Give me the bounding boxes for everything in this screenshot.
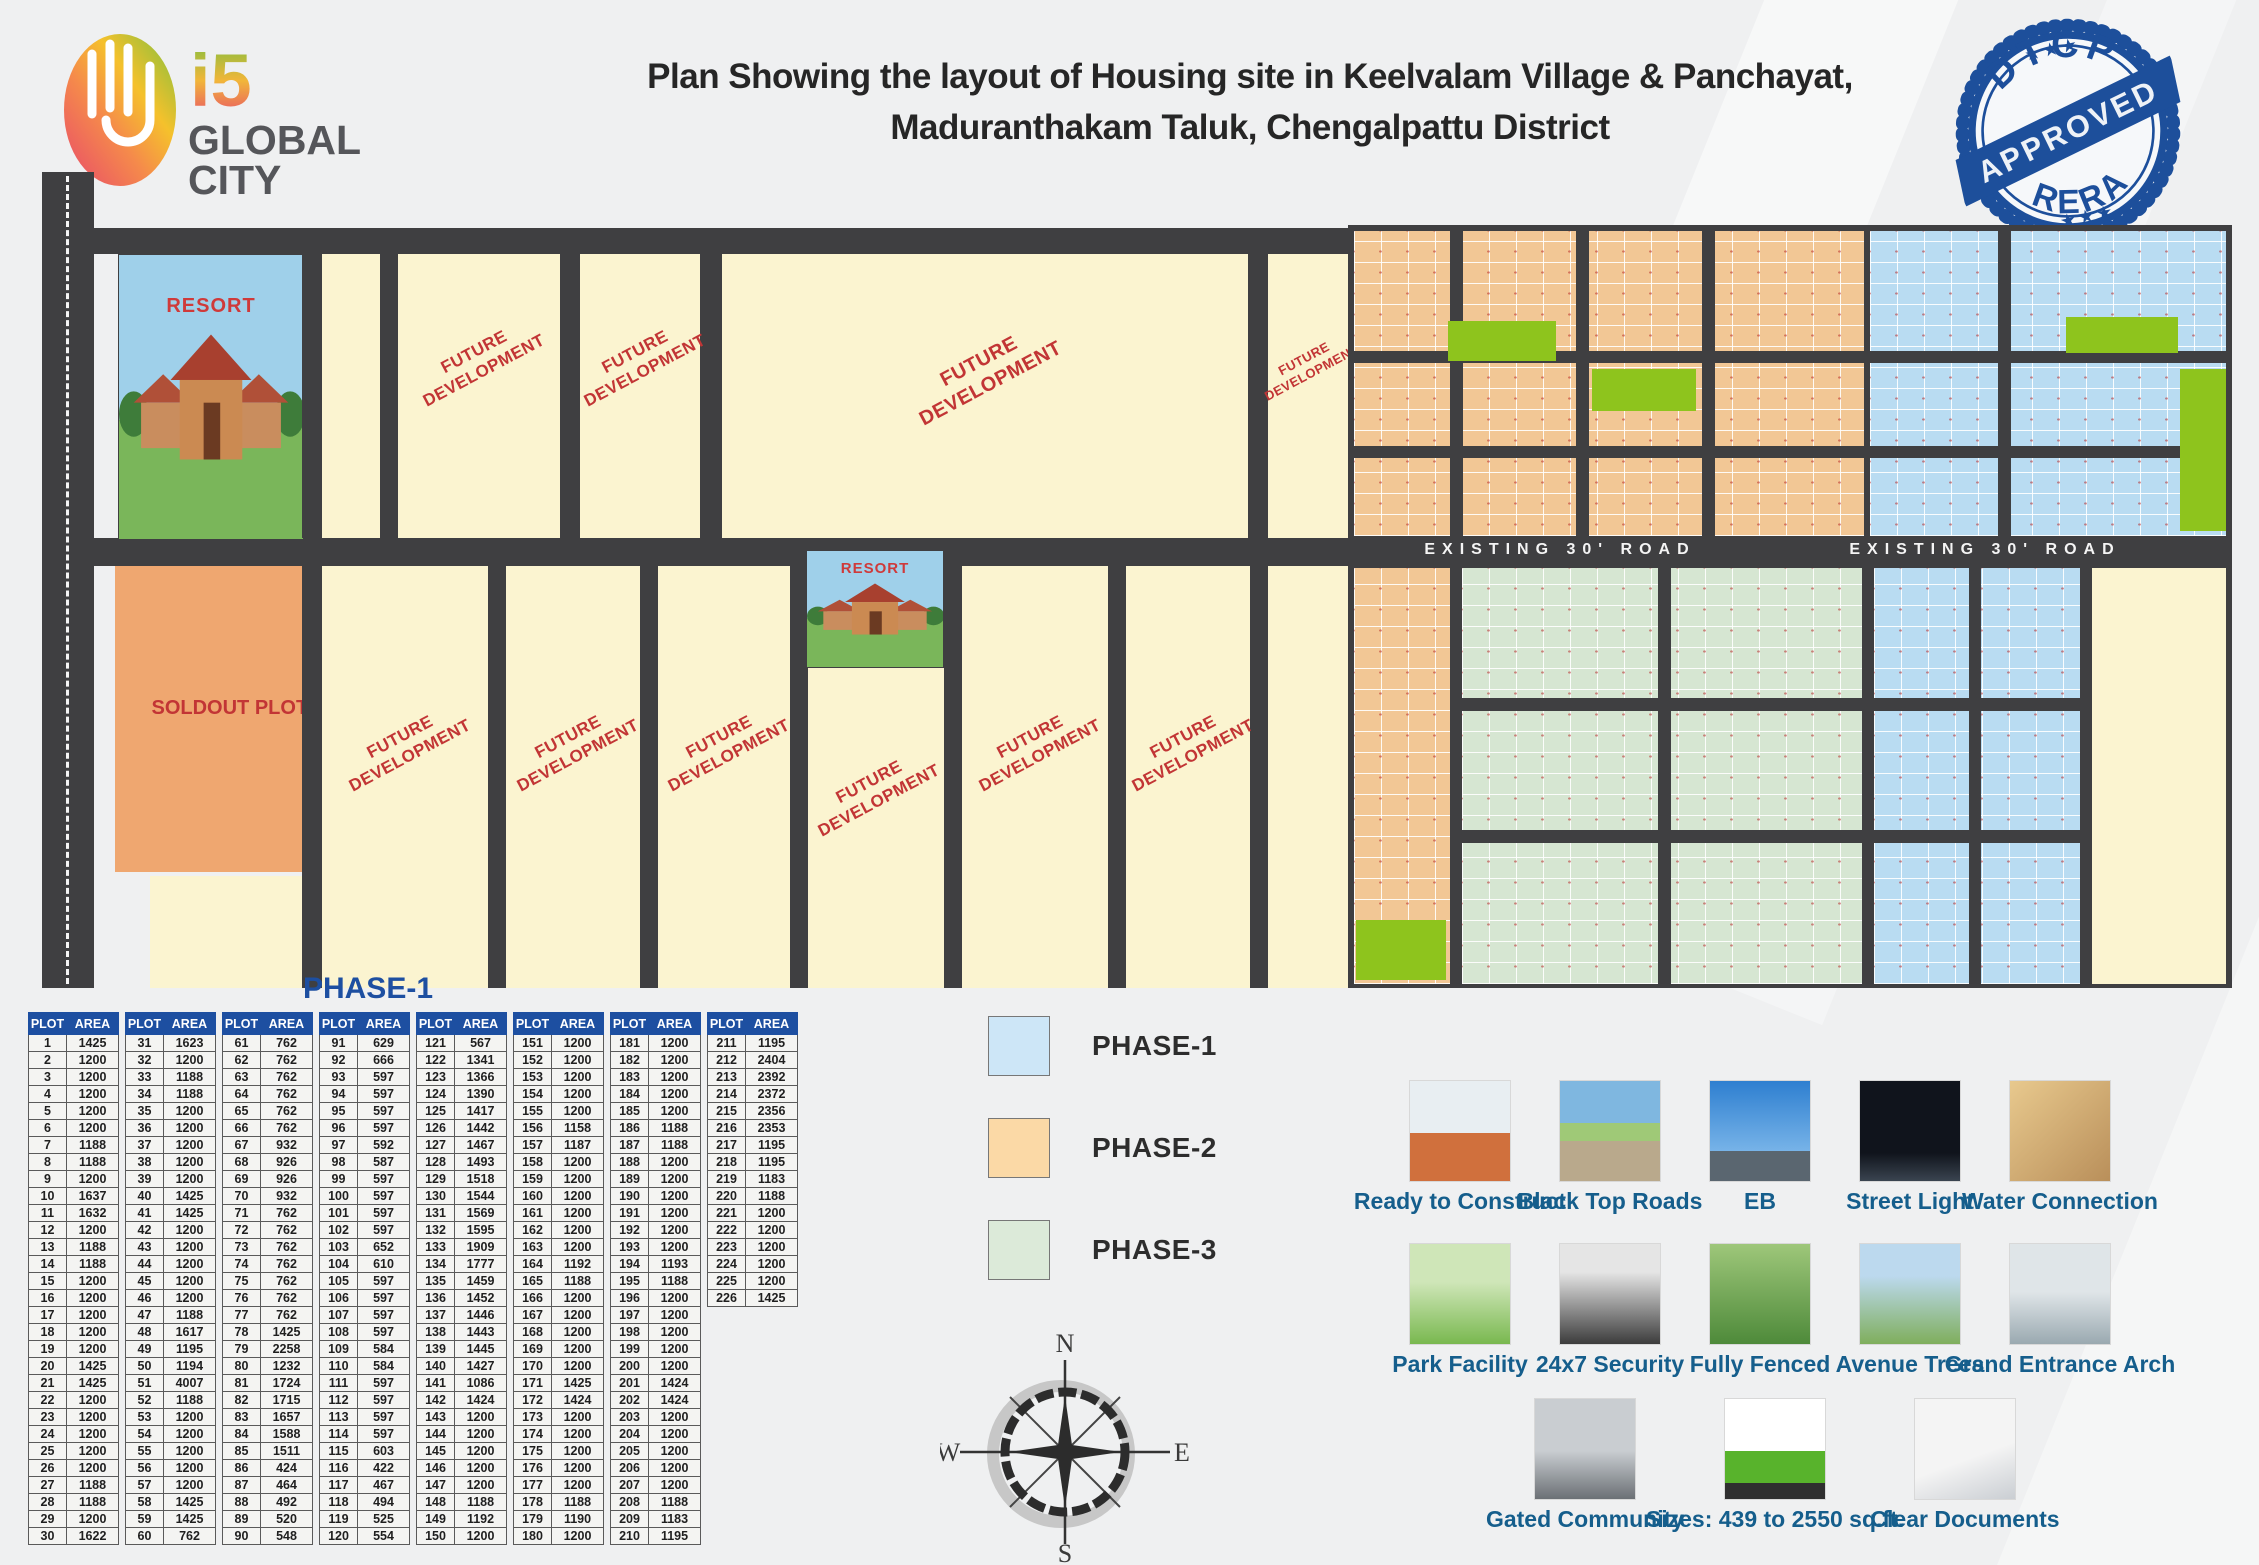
- plot-cell: 25: [29, 1443, 67, 1460]
- table-row: 76762: [223, 1290, 313, 1307]
- area-cell: 422: [358, 1460, 410, 1477]
- table-row: 581425: [126, 1494, 216, 1511]
- table-row: 591425: [126, 1511, 216, 1528]
- table-row: 1981200: [611, 1324, 701, 1341]
- plot-cell: 80: [223, 1358, 261, 1375]
- table-row: 221200: [29, 1392, 119, 1409]
- amenity-photo: [1709, 1080, 1811, 1182]
- table-row: 191200: [29, 1341, 119, 1358]
- area-cell: 1518: [455, 1171, 507, 1188]
- phase1-plot-block: [1874, 568, 2080, 984]
- area-cell: 1200: [649, 1307, 701, 1324]
- area-cell: 597: [358, 1086, 410, 1103]
- table-row: 1801200: [514, 1528, 604, 1545]
- area-cell: 1200: [67, 1307, 119, 1324]
- table-row: 831657: [223, 1409, 313, 1426]
- area-cell: 1200: [164, 1171, 216, 1188]
- table-row: 1641192: [514, 1256, 604, 1273]
- table-row: 541200: [126, 1426, 216, 1443]
- table-row: 2051200: [611, 1443, 701, 1460]
- table-row: 88492: [223, 1494, 313, 1511]
- area-cell: 467: [358, 1477, 410, 1494]
- plot-cell: 217: [708, 1137, 746, 1154]
- plot-cell: 13: [29, 1239, 67, 1256]
- table-row: 91200: [29, 1171, 119, 1188]
- table-row: 1281493: [417, 1154, 507, 1171]
- plot-cell: 152: [514, 1052, 552, 1069]
- area-cell: 1200: [649, 1443, 701, 1460]
- plot-cell: 137: [417, 1307, 455, 1324]
- table-row: 115603: [320, 1443, 410, 1460]
- area-cell: 1188: [67, 1477, 119, 1494]
- table-row: 251200: [29, 1443, 119, 1460]
- plot-cell: 59: [126, 1511, 164, 1528]
- plot-cell: 16: [29, 1290, 67, 1307]
- area-cell: 1200: [552, 1409, 604, 1426]
- area-cell: 1200: [67, 1120, 119, 1137]
- table-row: 201425: [29, 1358, 119, 1375]
- table-row: 65762: [223, 1103, 313, 1120]
- table-row: 351200: [126, 1103, 216, 1120]
- table-row: 74762: [223, 1256, 313, 1273]
- area-cell: 1200: [552, 1086, 604, 1103]
- table-row: 1381443: [417, 1324, 507, 1341]
- plot-cell: 164: [514, 1256, 552, 1273]
- plot-cell: 50: [126, 1358, 164, 1375]
- plot-cell: 118: [320, 1494, 358, 1511]
- table-row: 103652: [320, 1239, 410, 1256]
- plot-cell: 18: [29, 1324, 67, 1341]
- area-cell: 494: [358, 1494, 410, 1511]
- table-row: 301622: [29, 1528, 119, 1545]
- area-cell: 1183: [649, 1511, 701, 1528]
- plot-cell: 190: [611, 1188, 649, 1205]
- table-row: 441200: [126, 1256, 216, 1273]
- plot-cell: 35: [126, 1103, 164, 1120]
- area-cell: 1195: [746, 1035, 798, 1052]
- amenity-item: Fully Fenced: [1685, 1243, 1835, 1393]
- area-cell: 597: [358, 1273, 410, 1290]
- road: [1870, 446, 2226, 458]
- table-row: 1941193: [611, 1256, 701, 1273]
- plot-cell: 171: [514, 1375, 552, 1392]
- area-cell: 1622: [67, 1528, 119, 1545]
- table-row: 841588: [223, 1426, 313, 1443]
- plot-cell: 123: [417, 1069, 455, 1086]
- amenity-photo: [2009, 1080, 2111, 1182]
- area-cell: 926: [261, 1154, 313, 1171]
- plot-cell: 142: [417, 1392, 455, 1409]
- table-row: 1571187: [514, 1137, 604, 1154]
- area-cell: 1200: [455, 1409, 507, 1426]
- area-cell: 1188: [746, 1188, 798, 1205]
- plot-cell: 106: [320, 1290, 358, 1307]
- col-header: PLOT: [417, 1013, 455, 1035]
- table-row: 73762: [223, 1239, 313, 1256]
- table-row: 1741200: [514, 1426, 604, 1443]
- amenity-label: Black Top Roads: [1518, 1188, 1703, 1215]
- plot-cell: 87: [223, 1477, 261, 1494]
- plot-cell: 139: [417, 1341, 455, 1358]
- plot-cell: 205: [611, 1443, 649, 1460]
- amenity-photo: [1559, 1080, 1661, 1182]
- area-cell: 597: [358, 1307, 410, 1324]
- area-cell: 1200: [649, 1477, 701, 1494]
- plot-cell: 108: [320, 1324, 358, 1341]
- area-cell: 762: [261, 1120, 313, 1137]
- area-cell: 1195: [164, 1341, 216, 1358]
- area-cell: 1188: [164, 1069, 216, 1086]
- plot-cell: 187: [611, 1137, 649, 1154]
- plot-cell: 159: [514, 1171, 552, 1188]
- area-cell: 1200: [552, 1069, 604, 1086]
- area-cell: 597: [358, 1392, 410, 1409]
- table-row: 2071200: [611, 1477, 701, 1494]
- table-row: 2181195: [708, 1154, 798, 1171]
- table-row: 1531200: [514, 1069, 604, 1086]
- plot-cell: 147: [417, 1477, 455, 1494]
- area-cell: 1200: [552, 1052, 604, 1069]
- plot-cell: 157: [514, 1137, 552, 1154]
- area-cell: 1200: [552, 1477, 604, 1494]
- plot-cell: 85: [223, 1443, 261, 1460]
- table-row: 1991200: [611, 1341, 701, 1358]
- area-cell: 1200: [552, 1324, 604, 1341]
- amenity-photo: [1914, 1398, 2016, 1500]
- table-row: 120554: [320, 1528, 410, 1545]
- plot-cell: 69: [223, 1171, 261, 1188]
- area-cell: 597: [358, 1171, 410, 1188]
- area-cell: 1232: [261, 1358, 313, 1375]
- table-row: 531200: [126, 1409, 216, 1426]
- phase2-plot-block: [1354, 231, 1864, 536]
- table-row: 1841200: [611, 1086, 701, 1103]
- amenity-item: Water Connection: [1985, 1080, 2135, 1230]
- plot-cell: 193: [611, 1239, 649, 1256]
- area-cell: 762: [261, 1086, 313, 1103]
- plot-cell: 30: [29, 1528, 67, 1545]
- area-cell: 932: [261, 1137, 313, 1154]
- area-cell: 597: [358, 1120, 410, 1137]
- plot-cell: 175: [514, 1443, 552, 1460]
- area-cell: 1188: [67, 1494, 119, 1511]
- plot-cell: 55: [126, 1443, 164, 1460]
- plot-cell: 208: [611, 1494, 649, 1511]
- area-cell: 1200: [67, 1222, 119, 1239]
- plot-cell: 45: [126, 1273, 164, 1290]
- table-row: 1821200: [611, 1052, 701, 1069]
- area-cell: 1200: [552, 1154, 604, 1171]
- legend-label: PHASE-2: [1092, 1132, 1217, 1164]
- phase-table-title: PHASE-1: [288, 972, 448, 1006]
- area-cell: 1200: [67, 1171, 119, 1188]
- area-cell: 1617: [164, 1324, 216, 1341]
- area-cell: 1200: [67, 1052, 119, 1069]
- park-area: [2180, 369, 2226, 531]
- table-row: 451200: [126, 1273, 216, 1290]
- table-row: 67932: [223, 1137, 313, 1154]
- area-cell: 584: [358, 1358, 410, 1375]
- area-cell: 1909: [455, 1239, 507, 1256]
- plot-cell: 52: [126, 1392, 164, 1409]
- park-area: [1356, 920, 1446, 980]
- table-row: 1501200: [417, 1528, 507, 1545]
- road: [302, 566, 322, 988]
- table-row: 92666: [320, 1052, 410, 1069]
- area-cell: 1188: [649, 1120, 701, 1137]
- park-area: [2066, 317, 2178, 353]
- plot-cell: 148: [417, 1494, 455, 1511]
- legend-label: PHASE-1: [1092, 1030, 1217, 1062]
- area-cell: 1190: [552, 1511, 604, 1528]
- amenity-label: Park Facility: [1392, 1351, 1528, 1378]
- area-cell: 1200: [746, 1205, 798, 1222]
- plot-cell: 14: [29, 1256, 67, 1273]
- road: [1658, 568, 1671, 984]
- plot-cell: 216: [708, 1120, 746, 1137]
- amenity-label: 24x7 Security: [1536, 1351, 1684, 1378]
- road: [700, 254, 722, 538]
- plot-cell: 61: [223, 1035, 261, 1052]
- table-row: 491195: [126, 1341, 216, 1358]
- area-cell: 2258: [261, 1341, 313, 1358]
- plot-cell: 219: [708, 1171, 746, 1188]
- table-row: 2061200: [611, 1460, 701, 1477]
- plot-cell: 93: [320, 1069, 358, 1086]
- table-row: 1251417: [417, 1103, 507, 1120]
- table-row: 2162353: [708, 1120, 798, 1137]
- plot-cell: 209: [611, 1511, 649, 1528]
- plot-cell: 57: [126, 1477, 164, 1494]
- area-cell: 1200: [649, 1052, 701, 1069]
- area-cell: 1195: [649, 1528, 701, 1545]
- table-row: 112597: [320, 1392, 410, 1409]
- area-cell: 1200: [67, 1511, 119, 1528]
- table-row: 161200: [29, 1290, 119, 1307]
- area-cell: 762: [261, 1256, 313, 1273]
- area-cell: 1200: [649, 1188, 701, 1205]
- plot-cell: 60: [126, 1528, 164, 1545]
- table-row: 501194: [126, 1358, 216, 1375]
- table-row: 110584: [320, 1358, 410, 1375]
- phase-table: PLOTAREA21111952122404213239221423722152…: [707, 1012, 798, 1307]
- table-row: 2091183: [611, 1511, 701, 1528]
- plot-cell: 173: [514, 1409, 552, 1426]
- plot-cell: 220: [708, 1188, 746, 1205]
- area-cell: 1200: [649, 1069, 701, 1086]
- table-row: 107597: [320, 1307, 410, 1324]
- plot-cell: 78: [223, 1324, 261, 1341]
- plot-cell: 3: [29, 1069, 67, 1086]
- table-row: 1851200: [611, 1103, 701, 1120]
- resort-parcel-2: RESORT: [806, 550, 944, 668]
- plot-cell: 162: [514, 1222, 552, 1239]
- area-cell: 1200: [552, 1205, 604, 1222]
- area-cell: 1193: [649, 1256, 701, 1273]
- amenity-item: EB: [1685, 1080, 1835, 1230]
- plot-cell: 22: [29, 1392, 67, 1409]
- amenity-label: Sizes: 439 to 2550 sq.ft.: [1646, 1506, 1904, 1533]
- table-row: 86424: [223, 1460, 313, 1477]
- area-cell: 1200: [455, 1460, 507, 1477]
- plot-cell: 133: [417, 1239, 455, 1256]
- area-cell: 492: [261, 1494, 313, 1511]
- table-row: 1411086: [417, 1375, 507, 1392]
- table-row: 431200: [126, 1239, 216, 1256]
- table-row: 514007: [126, 1375, 216, 1392]
- area-cell: 1188: [552, 1273, 604, 1290]
- plot-cell: 211: [708, 1035, 746, 1052]
- table-row: 71188: [29, 1137, 119, 1154]
- table-row: 118494: [320, 1494, 410, 1511]
- table-row: 401425: [126, 1188, 216, 1205]
- plot-cell: 186: [611, 1120, 649, 1137]
- plot-cell: 166: [514, 1290, 552, 1307]
- table-row: 1241390: [417, 1086, 507, 1103]
- plot-cell: 9: [29, 1171, 67, 1188]
- table-row: 391200: [126, 1171, 216, 1188]
- plot-cell: 199: [611, 1341, 649, 1358]
- table-row: 1371446: [417, 1307, 507, 1324]
- plot-cell: 29: [29, 1511, 67, 1528]
- phase2-plot-block: [1354, 568, 1450, 984]
- area-cell: 1200: [649, 1171, 701, 1188]
- area-cell: 1425: [552, 1375, 604, 1392]
- amenity-item: Grand Entrance Arch: [1985, 1243, 2135, 1393]
- area-cell: 926: [261, 1171, 313, 1188]
- phase-table: PLOTAREA12156712213411231366124139012514…: [416, 1012, 507, 1545]
- area-cell: 1192: [552, 1256, 604, 1273]
- area-cell: 2372: [746, 1086, 798, 1103]
- plot-cell: 20: [29, 1358, 67, 1375]
- page-title-line1: Plan Showing the layout of Housing site …: [600, 52, 1900, 103]
- plot-cell: 224: [708, 1256, 746, 1273]
- plot-cell: 131: [417, 1205, 455, 1222]
- area-cell: 520: [261, 1511, 313, 1528]
- area-cell: 1595: [455, 1222, 507, 1239]
- table-row: 1491192: [417, 1511, 507, 1528]
- plot-cell: 132: [417, 1222, 455, 1239]
- col-header: AREA: [358, 1013, 410, 1035]
- table-row: 71762: [223, 1205, 313, 1222]
- area-cell: 1200: [67, 1069, 119, 1086]
- plot-cell: 92: [320, 1052, 358, 1069]
- plot-cell: 107: [320, 1307, 358, 1324]
- compass-n: N: [1056, 1332, 1075, 1358]
- table-row: 411425: [126, 1205, 216, 1222]
- area-cell: 1200: [649, 1460, 701, 1477]
- plot-cell: 122: [417, 1052, 455, 1069]
- area-cell: 1200: [164, 1103, 216, 1120]
- area-cell: 424: [261, 1460, 313, 1477]
- table-row: 90548: [223, 1528, 313, 1545]
- col-header: AREA: [261, 1013, 313, 1035]
- area-cell: 4007: [164, 1375, 216, 1392]
- area-cell: 1425: [67, 1358, 119, 1375]
- plot-cell: 95: [320, 1103, 358, 1120]
- plot-cell: 165: [514, 1273, 552, 1290]
- plot-cell: 141: [417, 1375, 455, 1392]
- resort-parcel-1: RESORT: [118, 254, 304, 540]
- plot-cell: 53: [126, 1409, 164, 1426]
- plot-cell: 170: [514, 1358, 552, 1375]
- table-row: 1681200: [514, 1324, 604, 1341]
- plot-cell: 83: [223, 1409, 261, 1426]
- plot-cell: 46: [126, 1290, 164, 1307]
- plot-cell: 62: [223, 1052, 261, 1069]
- table-row: 1401427: [417, 1358, 507, 1375]
- plot-cell: 222: [708, 1222, 746, 1239]
- plot-cell: 202: [611, 1392, 649, 1409]
- table-row: 96597: [320, 1120, 410, 1137]
- area-cell: 1425: [164, 1511, 216, 1528]
- amenities-row-1: Ready to ConstructBlack Top RoadsEBStree…: [1385, 1080, 2135, 1230]
- parcel: [2092, 568, 2226, 984]
- plot-cell: 149: [417, 1511, 455, 1528]
- main-road: [42, 172, 94, 988]
- area-cell: 1200: [67, 1392, 119, 1409]
- phase-table: PLOTAREA18112001821200183120018412001851…: [610, 1012, 701, 1545]
- area-cell: 464: [261, 1477, 313, 1494]
- amenity-item: Ready to Construct: [1385, 1080, 1535, 1230]
- area-cell: 762: [261, 1103, 313, 1120]
- plot-cell: 198: [611, 1324, 649, 1341]
- table-row: 1451200: [417, 1443, 507, 1460]
- plot-cell: 71: [223, 1205, 261, 1222]
- table-row: 2041200: [611, 1426, 701, 1443]
- table-row: 61762: [223, 1035, 313, 1052]
- table-row: 171200: [29, 1307, 119, 1324]
- plot-cell: 128: [417, 1154, 455, 1171]
- table-row: 60762: [126, 1528, 216, 1545]
- amenities-row-2: Park Facility24x7 SecurityFully FencedAv…: [1385, 1243, 2135, 1393]
- area-cell: 1188: [649, 1137, 701, 1154]
- table-row: 2132392: [708, 1069, 798, 1086]
- table-row: 1361452: [417, 1290, 507, 1307]
- page-title: Plan Showing the layout of Housing site …: [600, 52, 1900, 154]
- area-cell: 584: [358, 1341, 410, 1358]
- table-row: 131188: [29, 1239, 119, 1256]
- col-header: PLOT: [223, 1013, 261, 1035]
- plot-cell: 158: [514, 1154, 552, 1171]
- plot-cell: 140: [417, 1358, 455, 1375]
- area-cell: 1200: [649, 1086, 701, 1103]
- table-row: 1591200: [514, 1171, 604, 1188]
- plot-cell: 213: [708, 1069, 746, 1086]
- plot-cell: 37: [126, 1137, 164, 1154]
- area-cell: 1366: [455, 1069, 507, 1086]
- park-area: [1592, 369, 1696, 411]
- table-row: 571200: [126, 1477, 216, 1494]
- plot-cell: 204: [611, 1426, 649, 1443]
- plot-cell: 49: [126, 1341, 164, 1358]
- plot-cell: 212: [708, 1052, 746, 1069]
- area-cell: 1200: [746, 1239, 798, 1256]
- area-cell: 762: [261, 1307, 313, 1324]
- plot-cell: 153: [514, 1069, 552, 1086]
- plot-cell: 192: [611, 1222, 649, 1239]
- plot-cell: 151: [514, 1035, 552, 1052]
- table-row: 101637: [29, 1188, 119, 1205]
- amenity-item: 24x7 Security: [1535, 1243, 1685, 1393]
- plot-cell: 96: [320, 1120, 358, 1137]
- plot-cell: 167: [514, 1307, 552, 1324]
- area-cell: 1200: [67, 1086, 119, 1103]
- amenities-row-3: Gated CommunitySizes: 439 to 2550 sq.ft.…: [1490, 1398, 2060, 1548]
- area-cell: 1452: [455, 1290, 507, 1307]
- area-cell: 1200: [164, 1290, 216, 1307]
- table-row: 21200: [29, 1052, 119, 1069]
